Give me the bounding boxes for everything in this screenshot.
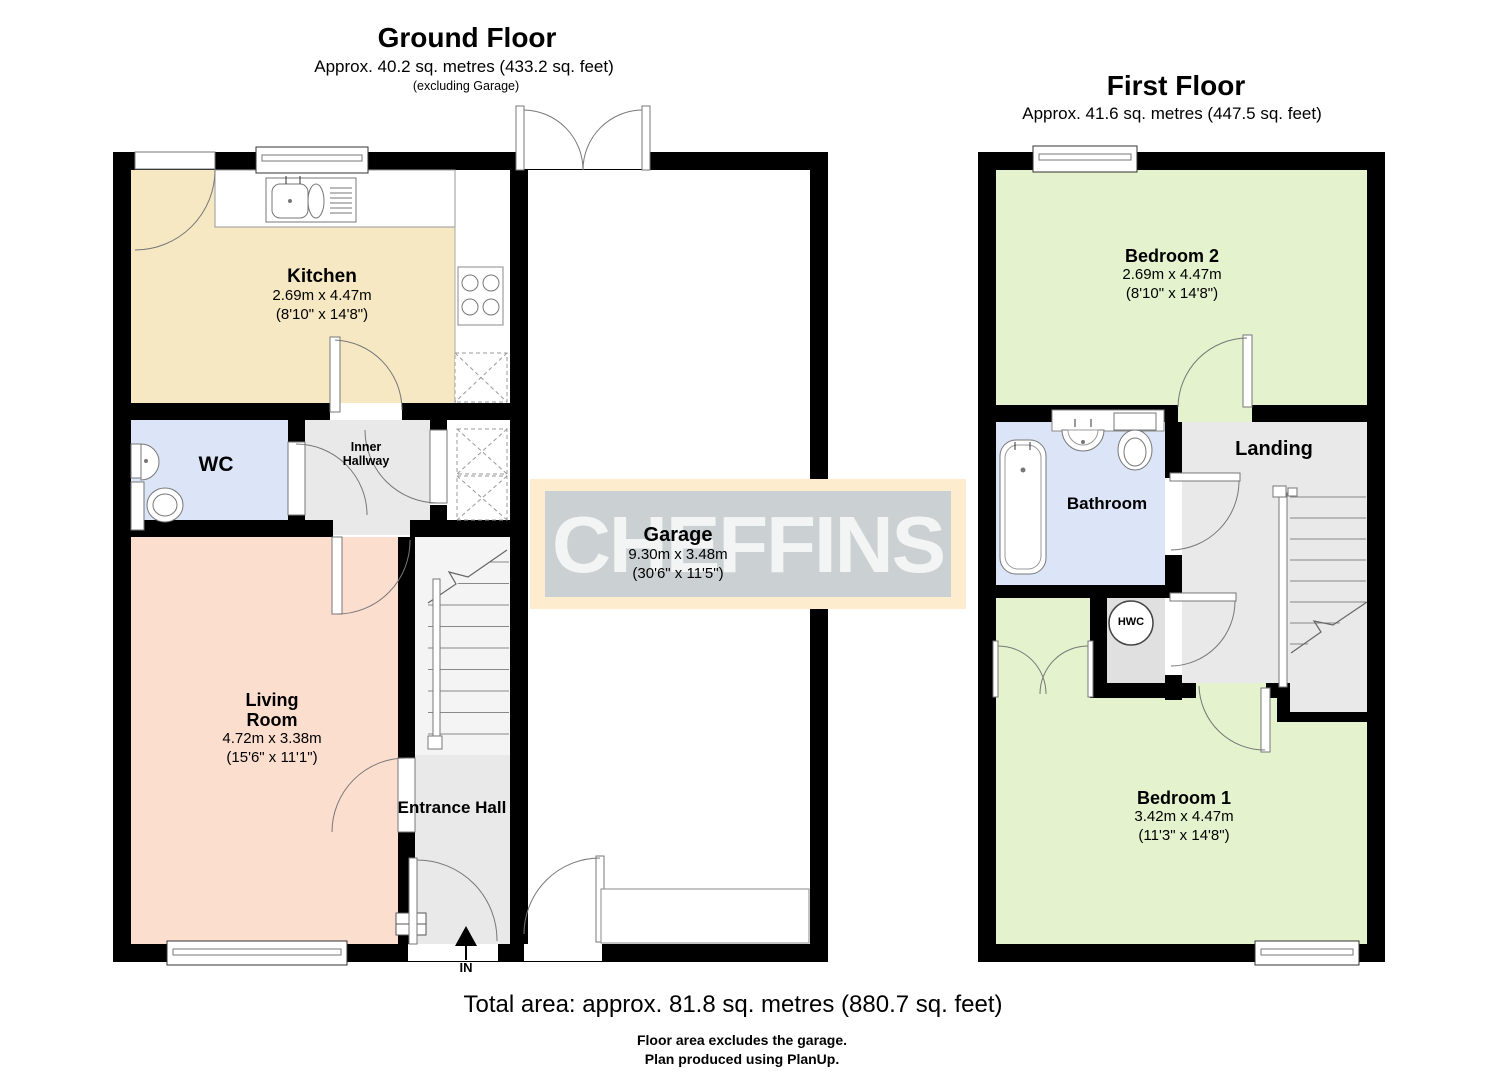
ff-stairs-handrail (1279, 493, 1287, 687)
bedroom2-label: Bedroom 2 2.69m x 4.47m (8'10" x 14'8") (1122, 246, 1221, 304)
total-area-label: Total area: approx. 81.8 sq. metres (880… (464, 992, 1003, 1019)
room-name: Garage (628, 524, 727, 546)
living-room-window (167, 941, 347, 965)
landing-label: Landing (1235, 438, 1313, 460)
ground-floor-title: Ground Floor (378, 22, 557, 53)
kitchen-sink (266, 176, 356, 222)
inner-hallway-label: Inner Hallway (326, 440, 406, 468)
ground-floor-note: (excluding Garage) (413, 79, 519, 93)
appliance-spaces (455, 353, 507, 520)
garage-label: Garage 9.30m x 3.48m (30'6" x 11'5") (628, 524, 727, 584)
ff-stairs-newel (1273, 486, 1286, 497)
garage-party-wall (510, 152, 528, 962)
wardrobe-floor (996, 598, 1090, 698)
room-size-imperial: (11'3" x 14'8") (1134, 827, 1233, 846)
room-size-metric: 9.30m x 3.48m (628, 546, 727, 565)
room-size-metric: 4.72m x 3.38m (222, 730, 321, 749)
living-room-label: Living Room 4.72m x 3.38m (15'6" x 11'1"… (222, 690, 321, 768)
bedroom1-label: Bedroom 1 3.42m x 4.47m (11'3" x 14'8") (1134, 788, 1233, 846)
room-name: Living Room (231, 690, 313, 730)
wc-label: WC (199, 453, 234, 477)
hwc-label: HWC (1118, 616, 1144, 628)
understairs-floor (1290, 698, 1367, 712)
footer-note-1: Floor area excludes the garage. (637, 1031, 847, 1050)
kitchen-window (256, 147, 368, 173)
floorplan-drawing: CHEFFINS (0, 0, 1485, 1080)
room-size-imperial: (8'10" x 14'8") (272, 306, 371, 325)
entry-label: IN (460, 961, 473, 976)
room-size-metric: 2.69m x 4.47m (272, 287, 371, 306)
gf-stairs-newel (428, 736, 442, 749)
room-size-imperial: (8'10" x 14'8") (1122, 285, 1221, 304)
bedroom2-window (1033, 146, 1137, 172)
first-floor-title: First Floor (1107, 70, 1245, 101)
first-floor-subtitle: Approx. 41.6 sq. metres (447.5 sq. feet) (1022, 104, 1322, 123)
room-size-imperial: (30'6" x 11'5") (628, 565, 727, 584)
garage-vehicle-door (601, 889, 809, 943)
kitchen-hob (458, 267, 503, 325)
bathroom-label: Bathroom (1067, 494, 1147, 513)
bedroom1-window (1255, 941, 1359, 965)
garage-double-doors (516, 106, 650, 170)
room-name: Bedroom 2 (1122, 246, 1221, 266)
ground-floor-subtitle: Approx. 40.2 sq. metres (433.2 sq. feet) (314, 57, 614, 76)
room-size-metric: 3.42m x 4.47m (1134, 808, 1233, 827)
kitchen-label: Kitchen 2.69m x 4.47m (8'10" x 14'8") (272, 266, 371, 325)
room-size-metric: 2.69m x 4.47m (1122, 266, 1221, 285)
room-name: Bedroom 1 (1134, 788, 1233, 808)
watermark-text: CHEFFINS (552, 500, 944, 589)
bathtub (1000, 440, 1046, 574)
cheffins-watermark: CHEFFINS (530, 479, 966, 609)
entrance-hall-floor (415, 755, 510, 944)
gf-stairs-handrail (433, 579, 440, 741)
footer-note-2: Plan produced using PlanUp. (645, 1050, 839, 1069)
room-size-imperial: (15'6" x 11'1") (222, 749, 321, 768)
entrance-hall-label: Entrance Hall (397, 798, 507, 817)
inner-hallway-floor (305, 420, 430, 535)
room-name: Kitchen (272, 266, 371, 287)
